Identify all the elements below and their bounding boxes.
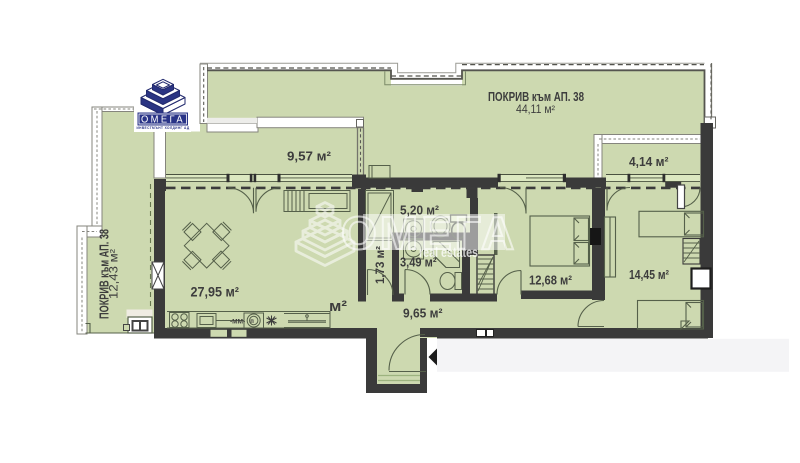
- svg-text:44,11 м²: 44,11 м²: [516, 104, 555, 116]
- svg-text:5,20 м²: 5,20 м²: [400, 203, 440, 218]
- svg-text:9,57 м²: 9,57 м²: [287, 149, 332, 164]
- svg-text:14,45 м²: 14,45 м²: [629, 267, 670, 282]
- svg-text:п: п: [250, 319, 254, 325]
- svg-text:27,95 м²: 27,95 м²: [191, 285, 240, 300]
- svg-text:4,14 м²: 4,14 м²: [629, 154, 669, 169]
- svg-text:1,73 м²: 1,73 м²: [375, 246, 387, 284]
- svg-text:12,68 м²: 12,68 м²: [529, 273, 573, 288]
- svg-text:12,43 м²: 12,43 м²: [109, 249, 121, 299]
- svg-text:ПОКРИВ към АП. 38: ПОКРИВ към АП. 38: [488, 90, 584, 104]
- svg-text:9,65 м²: 9,65 м²: [403, 306, 443, 321]
- svg-text:м²: м²: [329, 298, 347, 315]
- svg-text:-MM-: -MM-: [230, 319, 245, 326]
- svg-text:ОМЕГА: ОМЕГА: [141, 115, 185, 126]
- svg-text:ИНВЕСТМЪНТ ХОЛДИНГ АД: ИНВЕСТМЪНТ ХОЛДИНГ АД: [136, 126, 189, 130]
- svg-text:3,49 м²: 3,49 м²: [400, 255, 437, 270]
